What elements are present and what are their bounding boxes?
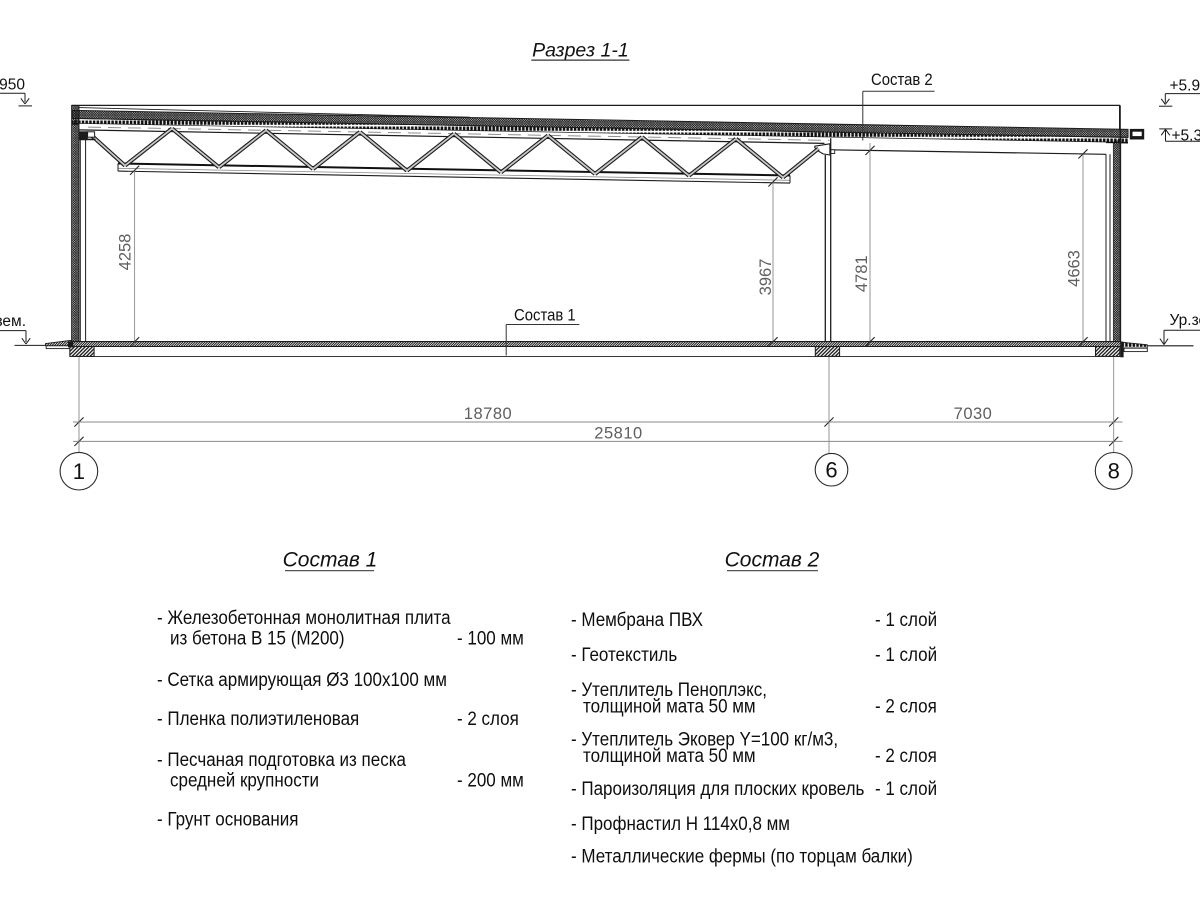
svg-text:- 100 мм: - 100 мм bbox=[457, 627, 524, 649]
svg-text:+5.38: +5.38 bbox=[1172, 127, 1200, 144]
svg-text:7030: 7030 bbox=[954, 405, 993, 423]
svg-text:- Профнастил Н 114х0,8 мм: - Профнастил Н 114х0,8 мм bbox=[571, 812, 790, 834]
svg-text:- 1 слой: - 1 слой bbox=[875, 643, 937, 665]
svg-text:1: 1 bbox=[73, 459, 85, 484]
svg-text:3967: 3967 bbox=[757, 259, 775, 296]
svg-text:8: 8 bbox=[1108, 459, 1120, 484]
svg-text:- 1 слой: - 1 слой bbox=[875, 608, 937, 630]
svg-text:- Металлические фермы (по торц: - Металлические фермы (по торцам балки) bbox=[571, 845, 913, 867]
svg-text:средней крупности: средней крупности bbox=[170, 768, 319, 790]
svg-text:Состав 2: Состав 2 bbox=[871, 71, 933, 89]
svg-text:Разрез 1-1: Разрез 1-1 bbox=[532, 39, 629, 61]
svg-text:Состав 1: Состав 1 bbox=[514, 306, 576, 324]
svg-text:- Грунт основания: - Грунт основания bbox=[157, 807, 298, 829]
svg-text:Состав 1: Состав 1 bbox=[283, 549, 378, 572]
svg-text:18780: 18780 bbox=[464, 405, 512, 423]
svg-text:6: 6 bbox=[825, 458, 837, 483]
svg-text:- 1 слой: - 1 слой bbox=[875, 777, 937, 799]
svg-text:4258: 4258 bbox=[117, 234, 135, 271]
svg-text:- Геотекстиль: - Геотекстиль bbox=[571, 643, 677, 665]
svg-text:Состав 2: Состав 2 bbox=[725, 549, 820, 572]
svg-text:- 2 слоя: - 2 слоя bbox=[457, 707, 519, 729]
svg-text:- 200 мм: - 200 мм bbox=[457, 768, 524, 790]
svg-text:- Песчаная подготовка из песка: - Песчаная подготовка из песка bbox=[157, 748, 407, 770]
svg-text:25810: 25810 bbox=[594, 424, 642, 442]
svg-text:4781: 4781 bbox=[853, 255, 871, 292]
svg-text:толщиной мата 50 мм: толщиной мата 50 мм bbox=[583, 694, 756, 716]
svg-text:+5.95: +5.95 bbox=[1170, 77, 1200, 94]
svg-text:толщиной мата 50 мм: толщиной мата 50 мм bbox=[583, 744, 756, 766]
svg-text:- Пленка полиэтиленовая: - Пленка полиэтиленовая bbox=[157, 707, 359, 729]
svg-text:- 2 слоя: - 2 слоя bbox=[875, 694, 937, 716]
svg-text:- Железобетонная монолитная п: - Железобетонная монолитная плита bbox=[157, 606, 451, 628]
svg-text:4663: 4663 bbox=[1066, 250, 1084, 287]
svg-text:Ур.зем.: Ур.зем. bbox=[1170, 312, 1200, 329]
svg-text:Ур.зем.: Ур.зем. bbox=[0, 313, 26, 330]
svg-text:+5.950: +5.950 bbox=[0, 77, 25, 94]
svg-text:- Мембрана ПВХ: - Мембрана ПВХ bbox=[571, 608, 703, 630]
svg-text:- Сетка армирующая Ø3 100х100: - Сетка армирующая Ø3 100х100 мм bbox=[157, 668, 447, 690]
svg-text:из бетона В 15 (М200): из бетона В 15 (М200) bbox=[170, 627, 345, 649]
svg-text:- 2 слоя: - 2 слоя bbox=[875, 744, 937, 766]
svg-text:- Пароизоляция для плоских кро: - Пароизоляция для плоских кровель bbox=[571, 777, 864, 799]
